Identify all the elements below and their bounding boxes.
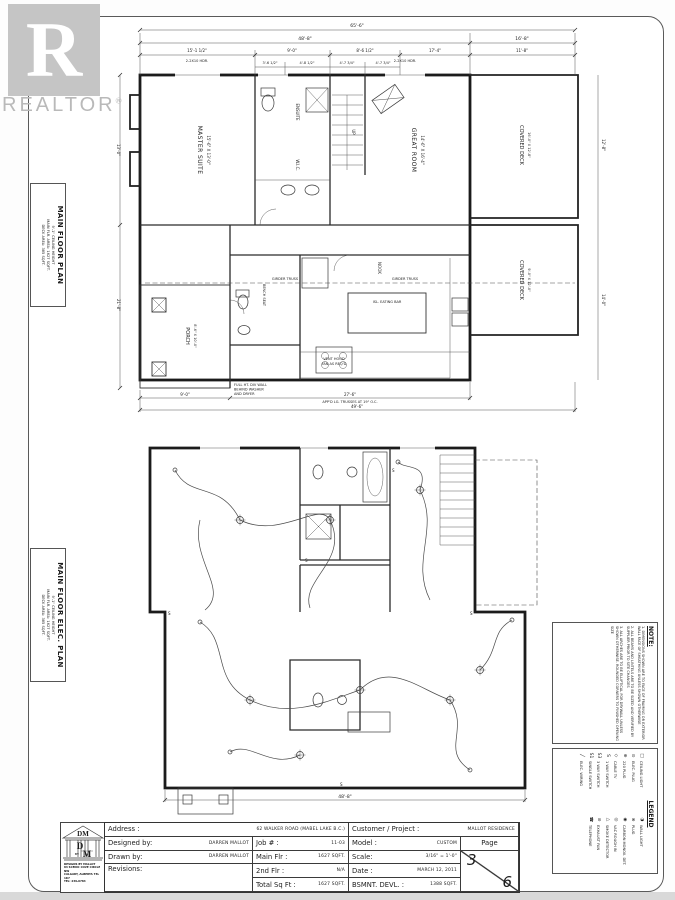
scanned-sheet-page: 65'-6" 48'-8" 16'-8" 15'-1 1/2" 9'-0" 8'… bbox=[0, 0, 675, 900]
note-title: NOTE: bbox=[647, 626, 654, 744]
scale-label: Scale: bbox=[352, 853, 373, 861]
label-covered-deck-1: COVERED DECK bbox=[518, 125, 524, 165]
legend-item: ◇CABLE TV bbox=[611, 752, 620, 812]
dim-f: 3'-6 1/2" bbox=[262, 61, 277, 65]
legend-item: △SMOKE DETECTOR bbox=[602, 816, 611, 874]
second-flr-cell: 2nd Flr : N/A bbox=[253, 864, 349, 878]
label-bench-seat: BENCH SEAT bbox=[262, 284, 266, 307]
label-div-wall-3: AND DRYER bbox=[234, 392, 255, 396]
label-header-1: 2-2X10 HDR. bbox=[186, 59, 208, 63]
dim-bot2: 27'-6" bbox=[344, 392, 356, 397]
side-label-sub1: 9'-1" CEILING HEIGHT bbox=[50, 184, 55, 306]
legend-label: 1 WAY SWITCH bbox=[603, 761, 610, 787]
elec-plan-walls bbox=[150, 446, 537, 815]
label-master-suite: MASTER SUITE bbox=[196, 126, 203, 175]
label-porch-dims: 8'-6" X 10'-0" bbox=[193, 324, 197, 348]
legend-item: ⊙ELEC. PLUG bbox=[628, 752, 637, 812]
side-label-sub3: DECK AREA: 385 SQFT. bbox=[40, 184, 45, 306]
legend-item: ╱ELEC. WIRING bbox=[577, 752, 586, 812]
dim-elec-bottom: 48'-8" bbox=[338, 794, 352, 800]
legend-title: LEGEND bbox=[647, 752, 654, 874]
drawn-label: Drawn by: bbox=[108, 853, 142, 861]
drawn-value: DARREN MALLOT bbox=[209, 854, 249, 859]
legend-item: □CEILING LIGHT bbox=[636, 752, 645, 812]
dim-c: 8'-6 1/2" bbox=[356, 48, 373, 53]
page-header-cell: Page bbox=[461, 837, 519, 851]
mainflr-label: Main Flr : bbox=[256, 853, 287, 861]
note-item: 3. ALL ARCHES ARE TO BE ELLIPTICAL FOR D… bbox=[609, 626, 623, 744]
realtor-brand: REALTOR bbox=[2, 94, 116, 116]
logo-monogram-m: M bbox=[83, 849, 92, 859]
legend-label: CABLE TV bbox=[612, 761, 619, 779]
elec-wiring-icon: ╱ bbox=[577, 752, 586, 759]
dim-main: 48'-8" bbox=[298, 36, 312, 42]
1-way-switch-icon: S bbox=[602, 752, 611, 759]
legend-column-1: □CEILING LIGHT ⊙ELEC. PLUG ⊕220 PLUG ◇CA… bbox=[577, 752, 645, 812]
date-cell: Date : MARCH 12, 2011 bbox=[349, 864, 461, 878]
label-stairs-up: UP bbox=[351, 129, 356, 135]
legend-label: TELEPHONE bbox=[586, 825, 593, 846]
model-label: Model : bbox=[352, 839, 377, 847]
legend-label: 220 PLUG bbox=[620, 761, 627, 778]
note-item: 1. DIMENSIONS SHOWN ARE TO FACE OF FRAMI… bbox=[636, 626, 645, 744]
label-girder-truss-2: GIRDER TRUSS bbox=[392, 277, 419, 281]
carbon-monox-icon: ◉ bbox=[619, 816, 628, 823]
total-label: Total Sq Ft : bbox=[256, 881, 296, 889]
model-value: CUSTOM bbox=[437, 841, 457, 846]
legend-label: ELEC. WIRING bbox=[577, 761, 584, 786]
dim-h: 4'-7 3/4" bbox=[339, 61, 354, 65]
legend-label: ELEC. PLUG bbox=[629, 761, 636, 782]
legend-label: SMOKE DETECTOR bbox=[603, 825, 610, 859]
designed-by-cell: Designed by: DARREN MALLOT bbox=[105, 837, 253, 851]
legend-box: LEGEND □CEILING LIGHT ⊙ELEC. PLUG ⊕220 P… bbox=[552, 748, 658, 874]
mainflr-value: 1627 SQFT. bbox=[318, 854, 345, 859]
dim-bot1: 9'-0" bbox=[180, 392, 190, 397]
bsmnt-devl-cell: BSMNT. DEVL. : 1388 SQFT. bbox=[349, 878, 461, 892]
switch-symbol: S bbox=[168, 611, 171, 616]
logo-monogram-top: DM bbox=[77, 830, 89, 838]
legend-item: S1SINGLE SWITCH bbox=[585, 752, 594, 812]
label-girder-truss-1: GIRDER TRUSS bbox=[272, 277, 299, 281]
logo-address-line: TEL: 239-0784 bbox=[64, 880, 105, 883]
dim-right2: 14'-0" bbox=[601, 294, 606, 306]
legend-label: PLUG bbox=[629, 825, 636, 834]
legend-label: CARBON MONOX. DET. bbox=[620, 825, 627, 865]
label-appd-trusses: APP'D LG. TRUSSES AT 19" O.C. bbox=[322, 400, 377, 404]
exhaust-fan-icon: ⊘ bbox=[594, 816, 603, 823]
job-number-cell: Job # : 11-03 bbox=[253, 837, 349, 851]
ceiling-light-icon: □ bbox=[636, 752, 645, 759]
customer-project-cell: Customer / Project : MALLOT RESIDENCE bbox=[349, 823, 519, 837]
smoke-detector-icon: △ bbox=[602, 816, 611, 823]
label-master-dims: 15'-6" X 13'-0" bbox=[206, 135, 211, 164]
page-total: 6 bbox=[502, 873, 512, 891]
designed-value: DARREN MALLOT bbox=[209, 841, 249, 846]
page-number: 3 bbox=[467, 851, 477, 869]
label-covered-deck-2: COVERED DECK bbox=[518, 260, 524, 300]
job-value: 11-03 bbox=[331, 841, 345, 846]
customer-label: Customer / Project : bbox=[352, 825, 419, 833]
logo-monogram-by: BY bbox=[75, 852, 80, 856]
label-ensuite: ENSUITE bbox=[295, 103, 300, 121]
wall-light-icon: ◑ bbox=[636, 816, 645, 823]
bath-fixtures bbox=[236, 88, 330, 335]
telephone-icon: ☎ bbox=[585, 816, 594, 823]
model-cell: Model : CUSTOM bbox=[349, 837, 461, 851]
main-flr-cell: Main Flr : 1627 SQFT. bbox=[253, 851, 349, 865]
3-way-switch-icon: S3 bbox=[594, 752, 603, 759]
label-deck2-dims: 9'-0" X 12'-0" bbox=[527, 268, 531, 292]
side-label-sub2: MAIN FLR. AREA: 1627 SQFT. bbox=[45, 184, 50, 306]
dim-b: 9'-0" bbox=[287, 48, 297, 53]
total-sqft-cell: Total Sq Ft : 1627 SQFT. bbox=[253, 878, 349, 892]
dim-d: 17'-4" bbox=[429, 48, 441, 53]
plug-icon: ⊗ bbox=[628, 816, 637, 823]
designed-label: Designed by: bbox=[108, 839, 152, 847]
note-item: 2. ALL BEAMS AND LINTELS ARE TO BE SIZED… bbox=[625, 626, 634, 744]
legend-label: WALL LIGHT bbox=[637, 825, 644, 847]
job-label: Job # : bbox=[256, 839, 279, 847]
dim-left1: 13'-0" bbox=[116, 144, 121, 156]
designer-logo: DM D BY M DESIGNS BY MALLOT 84 SCENIC CO… bbox=[60, 822, 106, 893]
legend-item: ⊕220 PLUG bbox=[619, 752, 628, 812]
legend-item: S1 WAY SWITCH bbox=[602, 752, 611, 812]
bsmnt-value: 1388 SQFT. bbox=[430, 882, 457, 887]
address-value: 62 WALKER ROAD (MABEL LAKE B.C.) bbox=[256, 827, 345, 832]
side-label-main-floor-elec-plan: MAIN FLOOR ELEC. PLAN 9'-1" CEILING HEIG… bbox=[30, 548, 66, 682]
side-label-sub2: MAIN FLR. AREA: 1627 SQFT. bbox=[45, 549, 50, 681]
realtor-r-icon: R bbox=[26, 15, 82, 85]
date-label: Date : bbox=[352, 867, 373, 875]
cable-tv-icon: ◇ bbox=[611, 752, 620, 759]
vac-rough-in-icon: ◎ bbox=[611, 816, 620, 823]
single-switch-icon: S1 bbox=[585, 752, 594, 759]
label-deck1-dims: 16'-0" X 12'-8" bbox=[527, 132, 531, 158]
legend-item: ◑WALL LIGHT bbox=[636, 816, 645, 874]
switch-symbol: S bbox=[470, 611, 473, 616]
legend-label: CEILING LIGHT bbox=[637, 761, 644, 787]
switch-symbol: S bbox=[392, 468, 395, 473]
side-label-title: MAIN FLOOR PLAN bbox=[55, 184, 63, 306]
dim-i: 4'-7 3/4" bbox=[375, 61, 390, 65]
side-label-main-floor-plan: MAIN FLOOR PLAN 9'-1" CEILING HEIGHT MAI… bbox=[30, 183, 66, 307]
side-label-title: MAIN FLOOR ELEC. PLAN bbox=[55, 549, 63, 681]
legend-item: ◉CARBON MONOX. DET. bbox=[619, 816, 628, 874]
legend-column-2: ◑WALL LIGHT ⊗PLUG ◉CARBON MONOX. DET. ◎V… bbox=[577, 816, 645, 874]
dim-e: 11'-8" bbox=[516, 48, 528, 53]
dim-a: 15'-1 1/2" bbox=[187, 48, 207, 53]
label-great-room: GREAT ROOM bbox=[410, 128, 417, 173]
dim-g: 4'-8 1/2" bbox=[299, 61, 314, 65]
legend-label: 3 WAY SWITCH bbox=[595, 761, 602, 787]
revisions-label: Revisions: bbox=[108, 865, 142, 873]
fireplace bbox=[372, 84, 404, 113]
scale-value: 3/16" = 1'-0" bbox=[426, 854, 457, 859]
legend-item: ⊗PLUG bbox=[628, 816, 637, 874]
dim-right1: 12'-8" bbox=[601, 139, 606, 151]
legend-item: ◎VAC ROUGH IN bbox=[611, 816, 620, 874]
bsmnt-label: BSMNT. DEVL. : bbox=[352, 881, 404, 889]
label-vent-hood: VENT HOOD bbox=[323, 357, 345, 361]
legend-label: VAC ROUGH IN bbox=[612, 825, 619, 852]
registered-mark: ® bbox=[116, 96, 122, 105]
220-plug-icon: ⊕ bbox=[619, 752, 628, 759]
label-div-wall-1: FULL HT. DIV WALL bbox=[234, 383, 267, 387]
dim-bot3: 49'-6" bbox=[351, 404, 363, 409]
legend-item: ⊘EXHAUST FAN bbox=[594, 816, 603, 874]
page-number-cell: 3 6 bbox=[461, 851, 519, 892]
legend-item: ☎TELEPHONE bbox=[585, 816, 594, 874]
label-porch: PORCH bbox=[184, 327, 190, 345]
scale-cell: Scale: 3/16" = 1'-0" bbox=[349, 851, 461, 865]
drawn-by-cell: Drawn by: DARREN MALLOT bbox=[105, 851, 253, 865]
elec-wiring bbox=[175, 462, 512, 770]
date-value: MARCH 12, 2011 bbox=[417, 868, 457, 873]
address-label: Address : bbox=[108, 825, 140, 833]
dim-deck: 16'-8" bbox=[515, 36, 529, 42]
secondflr-label: 2nd Flr : bbox=[256, 867, 284, 875]
label-div-wall-2: BEHIND WASHER bbox=[234, 388, 264, 392]
total-value: 1627 SQFT. bbox=[318, 882, 345, 887]
title-block: Address : 62 WALKER ROAD (MABEL LAKE B.C… bbox=[104, 822, 520, 893]
label-island: ISL. EATING BAR bbox=[373, 300, 402, 304]
note-box: NOTE: 1. DIMENSIONS SHOWN ARE TO FACE OF… bbox=[552, 622, 658, 744]
side-label-sub3: DECK AREA: 385 SQFT. bbox=[40, 549, 45, 681]
address-cell: Address : 62 WALKER ROAD (MABEL LAKE B.C… bbox=[105, 823, 349, 837]
realtor-watermark-text: REALTOR® bbox=[2, 94, 122, 117]
label-nook: NOOK bbox=[377, 262, 382, 274]
main-floor-room-labels: MASTER SUITE 15'-6" X 13'-0" ENSUITE W.I… bbox=[184, 59, 531, 404]
label-wic: W.I.C. bbox=[295, 159, 300, 170]
label-great-dims: 14'-6" X 16'-4" bbox=[420, 135, 425, 164]
dim-left2: 21'-8" bbox=[116, 299, 121, 311]
label-header-2: 2-2X10 HDR. bbox=[394, 59, 416, 63]
main-floor-stairs bbox=[332, 95, 363, 170]
elec-plug-icon: ⊙ bbox=[628, 752, 637, 759]
secondflr-value: N/A bbox=[337, 868, 345, 873]
page-label: Page bbox=[481, 839, 497, 847]
legend-label: SINGLE SWITCH bbox=[586, 761, 593, 789]
customer-value: MALLOT RESIDENCE bbox=[468, 827, 515, 832]
legend-label: EXHAUST FAN bbox=[595, 825, 602, 850]
revisions-cell: Revisions: bbox=[105, 864, 253, 892]
dim-overall: 65'-6" bbox=[350, 23, 364, 29]
legend-item: S33 WAY SWITCH bbox=[594, 752, 603, 812]
realtor-watermark-logo: R bbox=[8, 4, 100, 96]
switch-symbol: S bbox=[340, 782, 343, 787]
elec-plan-dimension: 48'-8" bbox=[163, 790, 527, 802]
label-vent-hood-2: FAN AS REQ'D bbox=[322, 362, 347, 366]
